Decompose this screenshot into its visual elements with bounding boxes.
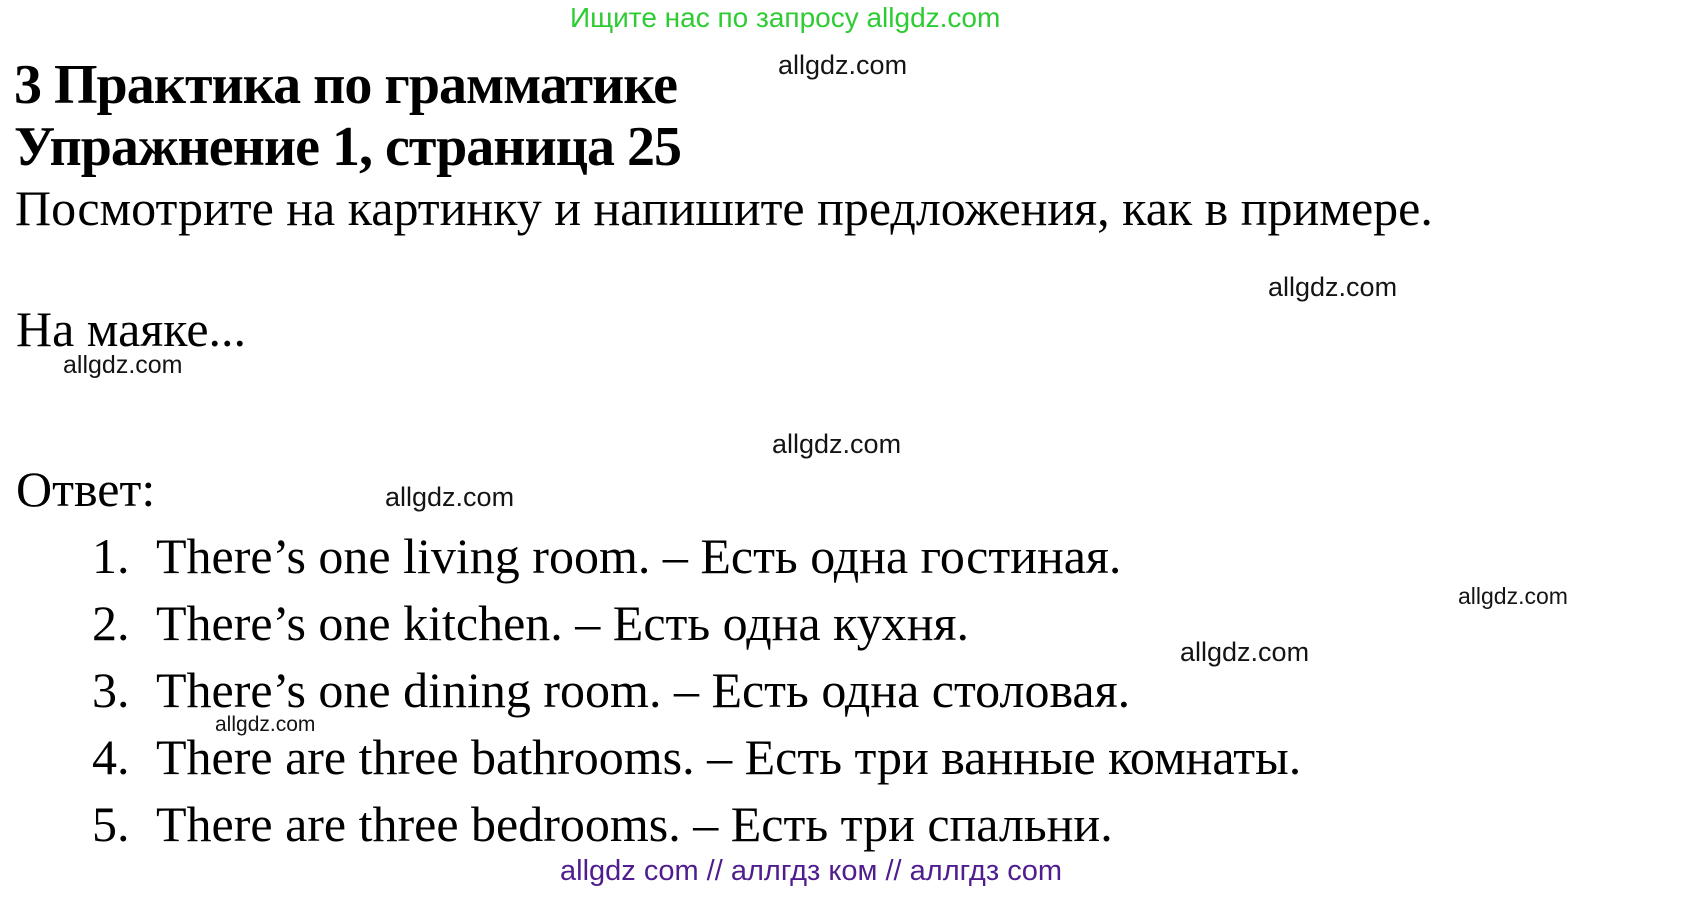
answer-item-5: 5. There are three bedrooms. – Есть три … [92,799,1113,849]
answer-number: 1. [92,531,134,581]
watermark: allgdz.com [778,52,907,79]
answer-label: Ответ: [16,464,155,514]
answer-text: There’s one dining room. – Есть одна сто… [156,665,1130,715]
task-instruction: Посмотрите на картинку и напишите предло… [15,183,1433,233]
footer-keywords: allgdz com // аллгдз ком // аллгдз com [560,857,1062,886]
watermark: allgdz.com [215,714,315,735]
watermark: allgdz.com [1268,274,1397,301]
watermark: allgdz.com [1458,585,1568,608]
answer-text: There’s one living room. – Есть одна гос… [156,531,1121,581]
context-line: На маяке... [16,304,246,354]
watermark: allgdz.com [63,353,183,378]
answer-number: 4. [92,732,134,782]
answer-number: 3. [92,665,134,715]
exercise-subtitle: Упражнение 1, страница 25 [14,119,681,175]
answer-text: There’s one kitchen. – Есть одна кухня. [156,598,969,648]
answer-item-1: 1. There’s one living room. – Есть одна … [92,531,1121,581]
answer-text: There are three bedrooms. – Есть три спа… [156,799,1113,849]
answer-number: 2. [92,598,134,648]
answer-item-2: 2. There’s one kitchen. – Есть одна кухн… [92,598,969,648]
answer-text: There are three bathrooms. – Есть три ва… [156,732,1301,782]
promo-banner-text: Ищите нас по запросу allgdz.com [570,4,1000,32]
watermark: allgdz.com [385,484,514,511]
section-title: 3 Практика по грамматике [14,57,677,113]
watermark: allgdz.com [1180,639,1309,666]
answer-item-3: 3. There’s one dining room. – Есть одна … [92,665,1130,715]
document-page: Ищите нас по запросу allgdz.com allgdz.c… [0,0,1696,905]
watermark: allgdz.com [772,431,901,458]
answer-number: 5. [92,799,134,849]
answer-item-4: 4. There are three bathrooms. – Есть три… [92,732,1301,782]
